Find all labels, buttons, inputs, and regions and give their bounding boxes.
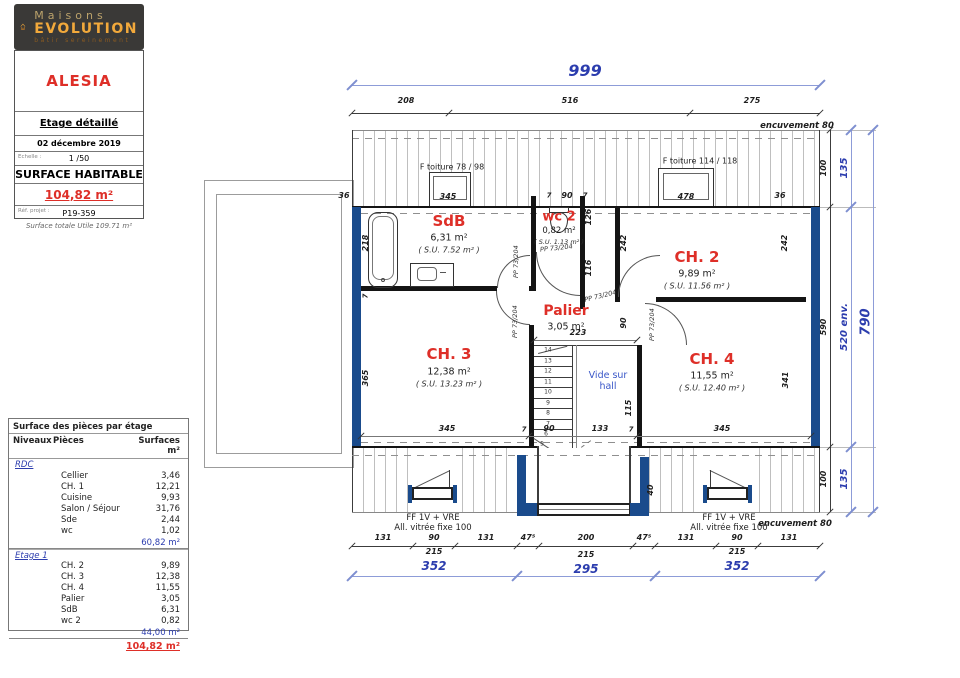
scale-label: Echelle : — [18, 154, 41, 160]
dim-wall7-left: 7 — [363, 294, 370, 299]
room-su-ch2: ( S.U. 11.56 m² ) — [664, 282, 730, 291]
dim-stair-width: 90 — [543, 425, 554, 433]
wall-ch2-south — [656, 297, 806, 302]
dim-b215c: 215 — [729, 548, 746, 556]
dim-corridor-a: 126 — [585, 209, 593, 226]
window-right-jamb-a — [703, 485, 707, 503]
company-logo: Maisons EVOLUTION bâtir sereinement — [14, 4, 144, 50]
stair-num: 9 — [546, 400, 550, 407]
grand-total: 104,82 m² — [9, 639, 188, 655]
dim-wc2-width: 90 — [561, 192, 572, 200]
door-arc-wc2 — [536, 252, 580, 296]
dim-b215b: 215 — [578, 551, 595, 559]
dim-top-mid: 516 — [562, 97, 579, 105]
dim-top-left: 208 — [398, 97, 415, 105]
table-row: Salon / Séjour31,76 — [9, 504, 188, 515]
brand-name-bottom: EVOLUTION — [34, 22, 138, 36]
table-row: CH. 112,21 — [9, 482, 188, 493]
dim-7b: 7 — [629, 427, 634, 434]
dim-ch2-east: 242 — [781, 235, 789, 252]
dim-b215a: 215 — [426, 548, 443, 556]
house-icon — [20, 11, 28, 43]
window-left-jamb-b — [453, 485, 457, 503]
window-right-type: FF 1V + VRE — [702, 513, 755, 523]
surface-label: SURFACE HABITABLE — [15, 165, 143, 183]
stair-step — [534, 419, 572, 420]
stair-stringer-b — [576, 345, 577, 457]
room-area-wc2: 0,82 m² — [542, 226, 575, 236]
table-row: SdB6,31 — [9, 605, 188, 616]
section-rdc: RDC — [9, 459, 188, 471]
dim-tick — [816, 109, 823, 116]
dim-line-right-black — [830, 130, 831, 512]
window-left-note: All. vitrée fixe 100 — [394, 523, 471, 533]
stair-step — [534, 377, 572, 378]
table-row: Cuisine9,93 — [9, 493, 188, 504]
dim-corridor-b: 116 — [585, 260, 593, 277]
stairwell-window-mid — [539, 509, 629, 510]
dim-ch2-west: 242 — [620, 235, 628, 252]
window-left-frame — [412, 487, 453, 500]
stair-num: 8 — [546, 410, 550, 417]
door-label-sdb: PP 73/204 — [512, 245, 520, 278]
dim-b90b: 90 — [731, 534, 742, 542]
dim-b131b: 131 — [478, 534, 495, 542]
dim-top-right: 275 — [744, 97, 761, 105]
room-area-ch3: 12,38 m² — [427, 367, 470, 378]
dim-line-bottom-blue — [352, 576, 820, 577]
areas-table-title: Surface des pièces par étage — [9, 419, 188, 434]
title-block: ALESIA Etage détaillé 02 décembre 2019 E… — [14, 50, 144, 219]
dim-line-right-blue1 — [851, 130, 852, 512]
stair-num: 12 — [544, 368, 552, 375]
col-pieces: Pièces — [43, 436, 132, 456]
dim-blue-295: 295 — [573, 563, 598, 575]
areas-table-header: Niveaux Pièces Surfaces m² — [9, 434, 188, 459]
dim-line-top-segments — [352, 113, 820, 114]
dim-wall-right: 36 — [774, 192, 785, 200]
sink-basin — [417, 267, 437, 281]
room-su-ch3: ( S.U. 13.23 m² ) — [416, 380, 482, 389]
window-left-type: FF 1V + VRE — [406, 513, 459, 523]
dim-right-790: 790 — [860, 308, 873, 335]
dim-wall-left: 36 — [338, 192, 349, 200]
dim-tick — [816, 542, 823, 549]
dim-7a: 7 — [522, 427, 527, 434]
dim-roof-window-ch2: 478 — [678, 193, 695, 201]
table-row: wc 20,82 — [9, 616, 188, 627]
stairwell-jamb-left-foot — [517, 503, 537, 516]
dim-right-135-bot: 135 — [840, 469, 850, 490]
stair-step — [534, 398, 572, 399]
table-row: wc1,02 — [9, 526, 188, 537]
project-name: ALESIA — [15, 51, 143, 111]
bathtub-faucet — [381, 278, 385, 282]
dim-right-590: 590 — [820, 319, 828, 336]
stair-num: 11 — [544, 379, 552, 386]
drawing-title: Etage détaillé — [15, 111, 143, 135]
dim-tick — [633, 336, 640, 343]
table-row: Palier3,05 — [9, 594, 188, 605]
table-row: Sde2,44 — [9, 515, 188, 526]
dim-b200: 200 — [578, 534, 595, 542]
window-right-note: All. vitrée fixe 100 — [690, 523, 767, 533]
room-area-ch4: 11,55 m² — [690, 371, 733, 382]
stairwell-bay-wall-left — [537, 446, 539, 505]
dim-blue-352b: 352 — [724, 560, 749, 572]
scale-row: Echelle :1 /50 — [15, 151, 143, 165]
dim-bay-depth: 40 — [647, 484, 655, 495]
rdc-subtotal: 60,82 m² — [9, 537, 188, 549]
dim-line-palier — [534, 340, 637, 341]
door-label-ch4: PP 73/204 — [648, 308, 656, 341]
room-label-sdb: SdB — [433, 212, 466, 230]
dim-ch3-width: 345 — [439, 425, 456, 433]
stair-step — [534, 356, 572, 357]
room-su-sdb: ( S.U. 7.52 m² ) — [418, 246, 479, 255]
dim-top-total: 999 — [568, 63, 601, 79]
dim-b475b: 47⁵ — [637, 534, 652, 542]
room-label-wc2: wc 2 — [542, 210, 575, 225]
dim-ch3-height: 365 — [362, 370, 370, 387]
stair-num: 14 — [544, 347, 552, 354]
stair-step — [534, 408, 572, 409]
dim-blue-352a: 352 — [421, 560, 446, 572]
room-su-ch4: ( S.U. 12.40 m² ) — [679, 384, 745, 393]
room-label-ch3: CH. 3 — [427, 345, 472, 363]
scale-value: 1 /50 — [69, 154, 90, 163]
roof-edge-top — [352, 130, 820, 131]
dim-b131a: 131 — [375, 534, 392, 542]
floor-plan-drawing: { "logo": {"brand_line1": "Maisons", "br… — [0, 0, 960, 678]
window-left-jamb-a — [408, 485, 412, 503]
etage1-subtotal: 44,00 m² — [9, 627, 188, 639]
door-arc-ch2 — [618, 255, 660, 297]
dim-line-total-width — [352, 85, 820, 86]
drawing-date: 02 décembre 2019 — [15, 135, 143, 151]
ref-row: Réf. projet :P19-359 — [15, 205, 143, 220]
encuvement-note-top: encuvement 80 — [760, 122, 834, 131]
table-row: CH. 29,89 — [9, 561, 188, 572]
stairwell-bay-wall-right — [629, 446, 631, 505]
dim-wc2-wall-a: 7 — [547, 193, 552, 200]
roof-window-sdb-label: F toiture 78 / 98 — [420, 163, 484, 172]
dim-b475a: 47⁵ — [521, 534, 536, 542]
bathtub-inner — [372, 216, 394, 280]
roof-dashed-line-bottom — [352, 455, 820, 456]
stair-num: 13 — [544, 358, 552, 365]
door-label-ch2: PP 73/204 — [584, 288, 618, 304]
stairwell-jamb-right-foot — [630, 503, 649, 516]
brand-tagline: bâtir sereinement — [34, 36, 138, 45]
roof-dashed-line-top — [352, 138, 820, 139]
window-swing-right-edge — [710, 470, 711, 488]
stairwell-jamb-left — [517, 455, 526, 505]
room-label-ch2: CH. 2 — [675, 248, 720, 266]
stair-step — [534, 366, 572, 367]
dim-roof-window-sdb: 345 — [440, 193, 457, 201]
dim-right-100-bot: 100 — [820, 471, 828, 488]
brand-name-top: Maisons — [34, 10, 138, 22]
col-niveaux: Niveaux — [9, 436, 43, 456]
areas-table: Surface des pièces par étage Niveaux Piè… — [8, 418, 189, 631]
window-swing-left-edge — [449, 470, 450, 488]
dim-right-520env: 520 env. — [840, 303, 850, 351]
table-row: CH. 312,38 — [9, 572, 188, 583]
dim-b131c: 131 — [678, 534, 695, 542]
stair-num: 10 — [544, 389, 552, 396]
stair-num: 5 — [540, 441, 544, 448]
dim-b131d: 131 — [781, 534, 798, 542]
stair-arrow-line — [538, 346, 567, 354]
surface-value: 104,82 m² — [15, 183, 143, 205]
dim-line-bottom-1 — [352, 546, 820, 547]
stair-stringer-a — [572, 345, 573, 457]
adjacent-roof-outline-inner — [216, 194, 342, 454]
dim-right-100-top: 100 — [820, 160, 828, 177]
dim-line-interior-bottom — [361, 436, 811, 437]
dim-ch4-door: 90 — [620, 317, 628, 328]
col-surfaces: Surfaces m² — [132, 436, 188, 456]
room-su-wc2: ( S.U. 1.13 m² ) — [534, 238, 584, 246]
room-area-palier: 3,05 m² — [547, 322, 584, 333]
dim-right-135-top: 135 — [840, 158, 850, 179]
gable-wall-left — [352, 207, 361, 448]
room-label-palier: Palier — [543, 303, 588, 319]
dim-vide-height: 115 — [625, 400, 633, 417]
room-label-ch4: CH. 4 — [690, 350, 735, 368]
ref-value: P19-359 — [62, 209, 95, 218]
ref-label: Réf. projet : — [18, 208, 50, 214]
encuvement-note-bottom: encuvement 80 — [758, 520, 832, 529]
room-area-ch2: 9,89 m² — [678, 269, 715, 280]
roof-band-edge-left — [352, 130, 353, 207]
table-row: Cellier3,46 — [9, 471, 188, 482]
table-row: CH. 411,55 — [9, 583, 188, 594]
window-right-frame — [707, 487, 748, 500]
room-area-sdb: 6,31 m² — [430, 233, 467, 244]
stair-step — [534, 387, 572, 388]
vide-sur-hall-label: Vide sur hall — [578, 370, 638, 392]
dim-vide-width: 133 — [592, 425, 609, 433]
window-right-jamb-b — [748, 485, 752, 503]
stairwell-jamb-right — [640, 457, 649, 505]
sink-tap — [440, 272, 446, 273]
door-label-ch3: PP 73/204 — [511, 305, 519, 338]
dim-ch4-east: 341 — [782, 372, 790, 389]
dim-bathtub: 218 — [362, 235, 370, 252]
wall-stair-east — [637, 345, 642, 457]
total-usable-surface-note: Surface totale Utile 109.71 m² — [14, 222, 144, 230]
roof-window-ch2-label: F toiture 114 / 118 — [663, 157, 738, 166]
dim-b90a: 90 — [428, 534, 439, 542]
dim-ch4-width: 345 — [714, 425, 731, 433]
section-etage1: Etage 1 — [9, 549, 188, 561]
roof-band-bl-edge — [352, 448, 353, 512]
